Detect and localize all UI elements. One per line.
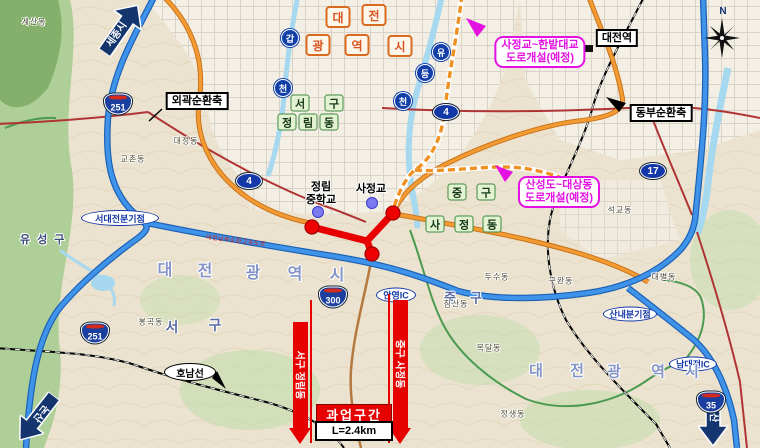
district-box: 서 — [291, 95, 310, 112]
badge-char-text: 전 — [368, 7, 379, 24]
school-text-2: 중학교 — [306, 194, 336, 206]
shield-band — [86, 325, 104, 329]
project-length-text: L=2.4km — [332, 425, 376, 437]
river-char: 천 — [399, 95, 407, 108]
district-box: 정 — [278, 114, 297, 131]
district-box: 정 — [455, 216, 474, 233]
river-marker: 천 — [274, 79, 292, 97]
city-text: 전 — [198, 257, 213, 281]
dist-char: 구 — [209, 317, 222, 333]
district-box: 구 — [325, 95, 344, 112]
badge-char-text: 시 — [394, 38, 405, 55]
city-char: 광 — [246, 265, 261, 282]
bridge-marker-icon — [366, 197, 378, 209]
place-text: 대별동 — [651, 273, 676, 282]
plan1-callout: 사정교~한밭대교 도로개설(예정) — [494, 36, 585, 68]
city-text: 전 — [570, 360, 584, 381]
river-char: 갑 — [286, 32, 294, 45]
yuseonggu-chars: 유성구 — [20, 234, 71, 246]
city-text: 대 — [529, 360, 543, 381]
shield-band — [109, 96, 127, 100]
route-number: 35 — [706, 400, 716, 412]
sajeong-bridge-label: 사정교 — [356, 180, 386, 196]
ribbon-junggu-sajeongdong: 중구 사정동 — [393, 300, 408, 428]
place-text: 정생동 — [500, 410, 525, 419]
route-number: 251 — [110, 102, 125, 114]
honam-line-label: 호남선 — [164, 363, 216, 381]
place-text: 두수동 — [484, 273, 509, 282]
place-label: 정생동 — [500, 409, 525, 420]
compass-north-label: N — [719, 6, 726, 17]
plan2-line2: 도로개설(예정) — [525, 192, 593, 205]
place-label: 두수동 — [484, 272, 509, 283]
district-char: 동 — [487, 216, 497, 232]
district-char: 구 — [329, 95, 339, 111]
shield-band — [324, 289, 342, 293]
river-char: 천 — [279, 82, 287, 95]
bridge-text: 사정교 — [356, 183, 386, 195]
map-canvas: 세종시 논산 마산 N 대 전 광 역 시 갑 천 유 — [0, 0, 760, 448]
east-ring-text: 동부순환축 — [636, 107, 687, 119]
route-17-shield: 17 — [640, 163, 666, 179]
station-text: 대전역 — [602, 32, 632, 44]
route-4-shield: 4 — [433, 104, 459, 120]
plan2-callout: 산성도~대상동 도로개설(예정) — [518, 176, 600, 208]
station-icon — [585, 45, 593, 52]
reservoir — [91, 275, 115, 291]
honam-text: 호남선 — [176, 365, 204, 380]
district-box: 구 — [477, 184, 496, 201]
district-char: 정 — [282, 114, 292, 130]
yuseonggu-text: 유성구 — [20, 231, 71, 247]
river-marker: 천 — [394, 92, 412, 110]
city-text: 광 — [246, 259, 261, 283]
ic-text: 산내분기점 — [609, 308, 650, 321]
city-badge-char: 전 — [362, 4, 387, 26]
ic-text: 서대전분기점 — [95, 212, 145, 225]
district-char: 사 — [430, 216, 440, 232]
district-char: 중 — [452, 184, 462, 200]
place-text: 교촌동 — [120, 155, 145, 164]
place-text: 계산동 — [21, 18, 46, 27]
place-label: 계산동 — [21, 17, 46, 28]
plan1-line2: 도로개설(예정) — [501, 52, 578, 65]
route-number: 300 — [325, 295, 340, 307]
place-text: 목달동 — [476, 344, 501, 353]
place-text: 대정동 — [173, 137, 198, 146]
district-box: 중 — [448, 184, 467, 201]
badge-char-text: 광 — [312, 37, 323, 54]
place-label: 대별동 — [651, 272, 676, 283]
river-marker: 갑 — [281, 29, 299, 47]
city-badge-char: 광 — [306, 34, 331, 56]
shield-band — [702, 394, 720, 398]
compass-center — [720, 36, 725, 41]
route-number: 251 — [87, 331, 102, 343]
project-endpoint-north — [386, 206, 400, 220]
sannae-jc-label: 산내분기점 — [603, 307, 657, 322]
city-char: 전 — [198, 263, 213, 280]
route-number: 4 — [443, 107, 449, 118]
river-char: 등 — [421, 67, 429, 80]
daejeon-station-label: 대전역 — [596, 29, 638, 47]
city-char: 대 — [529, 363, 543, 380]
plan1-line1: 사정교~한밭대교 — [501, 39, 578, 52]
place-text: 구완동 — [548, 277, 573, 286]
compass-rose: N — [702, 4, 742, 64]
river-char: 유 — [437, 46, 445, 59]
city-text: 광 — [607, 361, 621, 382]
place-label: 교촌동 — [120, 154, 145, 165]
plan2-line1: 산성도~대상동 — [525, 179, 593, 192]
city-char: 역 — [651, 364, 665, 381]
city-char: 대 — [158, 262, 173, 279]
district-char: 동 — [324, 114, 334, 130]
city-text: 대 — [158, 256, 173, 280]
place-text: 석교동 — [607, 206, 632, 215]
city-text: 시 — [685, 361, 699, 382]
ribbon-left-text: 서구 정림동 — [293, 351, 308, 400]
route-number: 17 — [647, 166, 658, 177]
city-char: 광 — [607, 364, 621, 381]
place-label: 석교동 — [607, 205, 632, 216]
district-box: 동 — [483, 216, 502, 233]
hill-patch — [520, 390, 660, 448]
place-label: 구완동 — [548, 276, 573, 287]
city-badge-char: 대 — [326, 6, 351, 28]
seogu-text: 서 — [166, 317, 179, 337]
badge-char-text: 대 — [332, 9, 343, 26]
city-char: 시 — [330, 267, 345, 284]
city-text: 역 — [651, 361, 665, 382]
city-text: 역 — [288, 260, 303, 284]
ribbon-right-text: 중구 사정동 — [393, 340, 408, 389]
place-label: 봉곡동 — [138, 317, 163, 328]
place-label: 목달동 — [476, 343, 501, 354]
district-box: 림 — [299, 114, 318, 131]
place-label: 침산동 — [443, 299, 468, 310]
route-number: 4 — [246, 176, 252, 187]
district-char: 서 — [295, 95, 305, 111]
east-ring-label: 동부순환축 — [630, 104, 693, 122]
dist-char: 서 — [166, 319, 179, 335]
dist-char: 구 — [470, 291, 482, 306]
school-marker-icon — [312, 206, 324, 218]
project-endpoint-south — [365, 247, 379, 261]
place-text: 봉곡동 — [138, 318, 163, 327]
project-length-box: L=2.4km — [315, 421, 393, 441]
city-badge-char: 시 — [388, 35, 413, 57]
seodaejeon-jc-label: 서대전분기점 — [81, 210, 159, 226]
river-marker: 유 — [432, 43, 450, 61]
city-badge-char: 역 — [345, 34, 370, 56]
seogu-text: 구 — [209, 315, 222, 335]
jeongnim-school-label: 중학교 — [306, 191, 336, 207]
city-char: 시 — [685, 364, 699, 381]
junggu-text: 구 — [470, 288, 482, 307]
district-box: 동 — [320, 114, 339, 131]
place-label: 대정동 — [173, 136, 198, 147]
city-char: 전 — [570, 363, 584, 380]
outer-ring-label: 외곽순환축 — [166, 92, 229, 110]
project-boundary-line-left — [310, 300, 312, 443]
ribbon-seogu-jeongnimdong: 서구 정림동 — [293, 322, 308, 428]
project-endpoint-west — [305, 220, 319, 234]
route-4-shield: 4 — [236, 173, 262, 189]
district-char: 정 — [459, 216, 469, 232]
outer-ring-text: 외곽순환축 — [172, 95, 223, 107]
place-text: 침산동 — [443, 300, 468, 309]
district-char: 림 — [303, 114, 313, 130]
district-char: 구 — [481, 184, 491, 200]
city-char: 역 — [288, 266, 303, 283]
river-marker: 등 — [416, 64, 434, 82]
city-text: 시 — [330, 261, 345, 285]
district-box: 사 — [426, 216, 445, 233]
badge-char-text: 역 — [351, 37, 362, 54]
